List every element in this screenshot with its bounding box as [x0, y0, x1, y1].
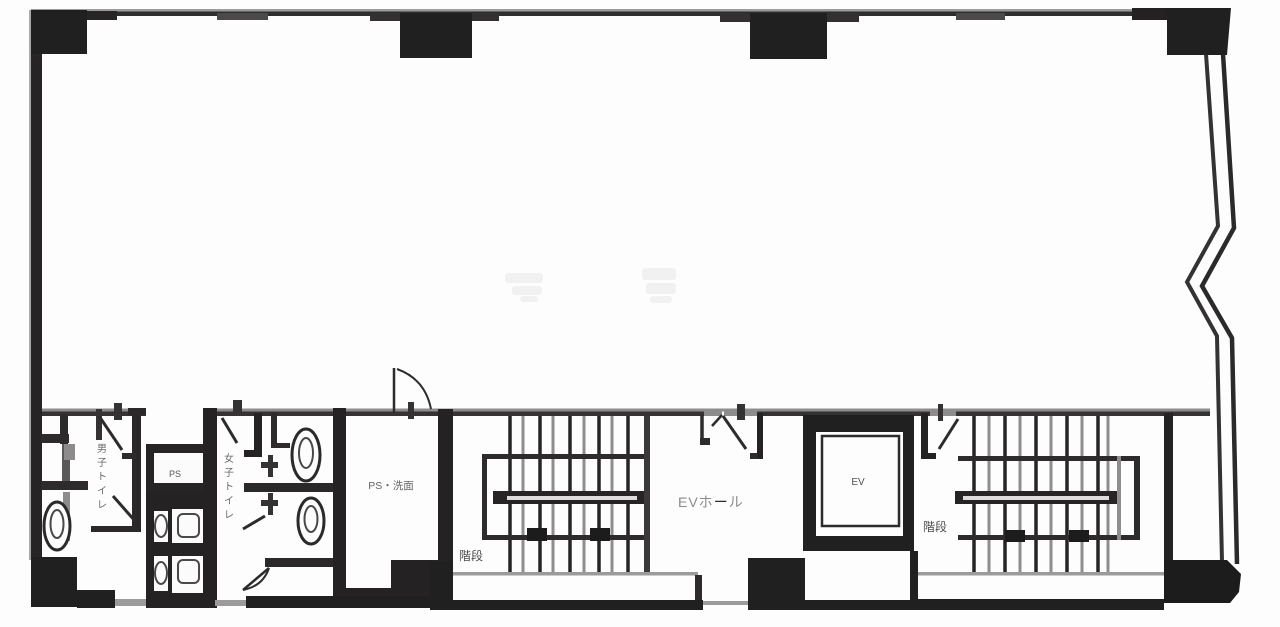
- svg-text:EVホール: EVホール: [678, 494, 744, 510]
- svg-text:PS: PS: [169, 469, 181, 479]
- svg-text:EV: EV: [851, 477, 865, 488]
- svg-text:女子トイレ: 女子トイレ: [224, 452, 234, 521]
- svg-text:男子トイレ: 男子トイレ: [97, 443, 107, 511]
- svg-text:階段: 階段: [459, 548, 483, 563]
- svg-text:PS・洗面: PS・洗面: [368, 480, 414, 492]
- svg-text:階段: 階段: [923, 519, 947, 534]
